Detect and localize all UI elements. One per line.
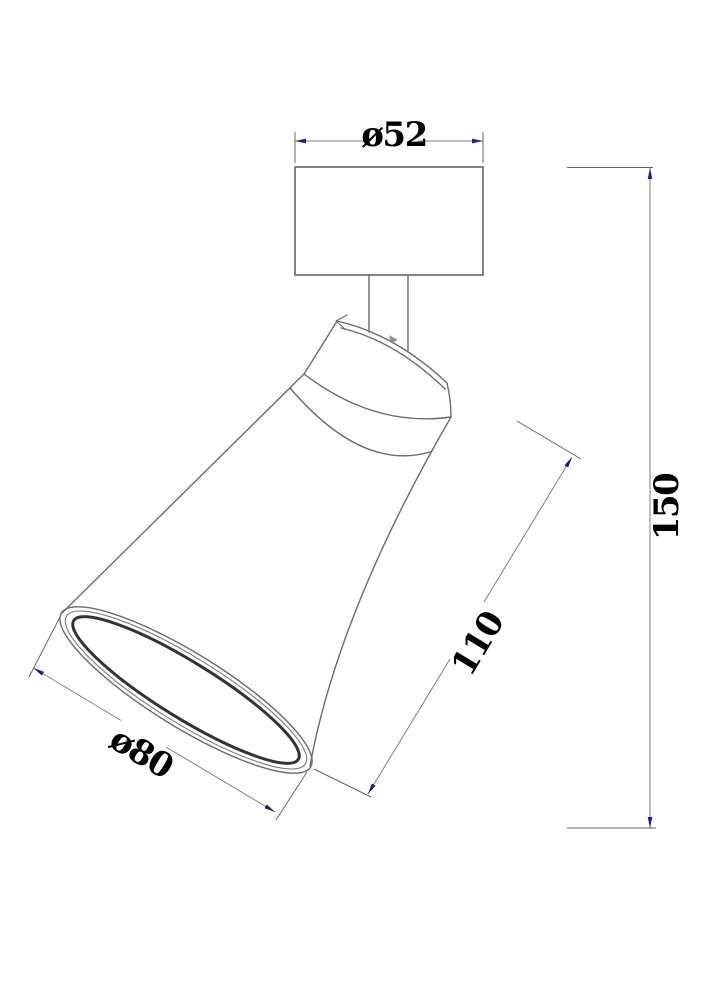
arrow-lower-icon (368, 784, 376, 795)
collar-left-edge (304, 321, 337, 374)
ext-line-bottom (314, 769, 371, 797)
shade-right-edge (310, 417, 451, 766)
canopy-outline (295, 167, 483, 275)
arrow-left-icon (295, 139, 306, 144)
dimension-canopy-diameter: ø52 (295, 115, 483, 163)
shade-length-label: 110 (444, 604, 513, 682)
collar-right-edge (447, 383, 451, 417)
dim-line-upper-segment (484, 457, 572, 602)
overall-height-label: 150 (647, 473, 687, 540)
fixture-outline (42, 167, 483, 798)
shade-band-lower (290, 388, 430, 456)
shade-opening-label: ø80 (103, 719, 180, 787)
shade-opening-inner (59, 597, 313, 783)
dimension-shade-length: 110 (314, 421, 581, 797)
dim-line-upper-segment (34, 668, 122, 721)
arrow-upper-icon (34, 668, 45, 676)
ext-line-bottom (276, 772, 307, 820)
shade-band-upper (304, 374, 451, 419)
arrow-top-icon (648, 168, 653, 179)
shade-opening-mid (49, 588, 323, 792)
collar-rim-inner (341, 328, 445, 389)
ext-line-top (517, 421, 581, 459)
shade-opening (42, 582, 330, 799)
arrow-right-icon (472, 139, 483, 144)
dimension-overall-height: 150 (567, 168, 687, 829)
canopy-diameter-label: ø52 (361, 115, 427, 155)
collar-rim-outer (337, 321, 447, 383)
shade-opening-outer (42, 582, 330, 799)
drawing-canvas: ø52 ø80 110 150 (0, 0, 707, 1000)
arrow-upper-icon (564, 457, 572, 468)
arrow-bottom-icon (648, 817, 653, 828)
shade-left-edge (62, 374, 304, 613)
arrow-lower-icon (265, 804, 276, 812)
dim-line-lower-segment (368, 659, 450, 794)
lamp-dimension-drawing: ø52 ø80 110 150 (0, 0, 707, 1000)
